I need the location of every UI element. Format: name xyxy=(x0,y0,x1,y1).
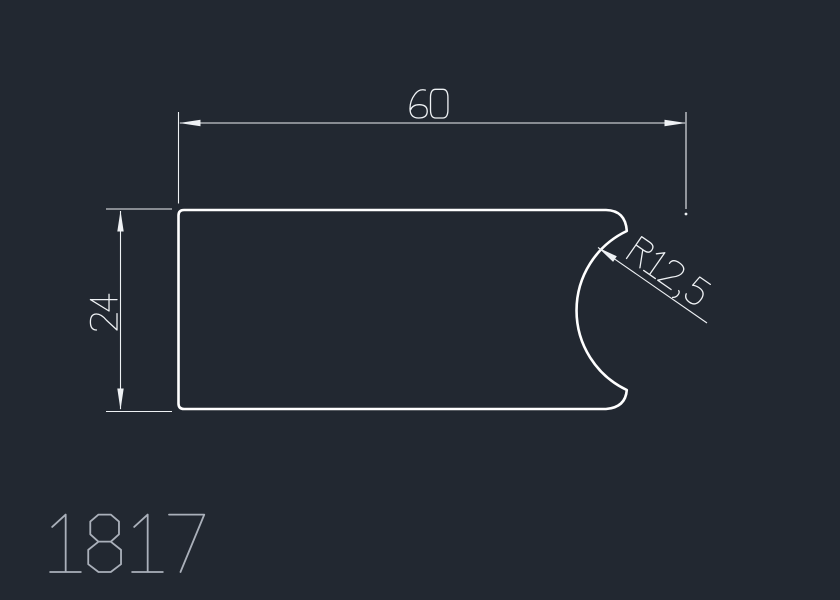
drawing-viewport xyxy=(0,0,840,600)
width-arrowhead-left xyxy=(179,120,201,126)
part-number-label[interactable] xyxy=(50,515,204,572)
profile-outline[interactable] xyxy=(179,210,627,409)
height-arrowhead-top xyxy=(117,211,123,232)
cad-canvas xyxy=(0,0,840,600)
profile-path[interactable] xyxy=(179,210,627,409)
width-dimension-text xyxy=(410,89,448,118)
height-arrowhead-bottom xyxy=(117,389,123,411)
radius-arrowhead xyxy=(598,248,617,262)
dimension-height[interactable] xyxy=(90,209,172,412)
width-arrowhead-right xyxy=(665,120,687,126)
dimension-radius[interactable] xyxy=(598,237,711,323)
width-defpoint-dot xyxy=(685,213,688,216)
height-dimension-text xyxy=(90,294,117,330)
dimension-width[interactable] xyxy=(179,89,688,215)
